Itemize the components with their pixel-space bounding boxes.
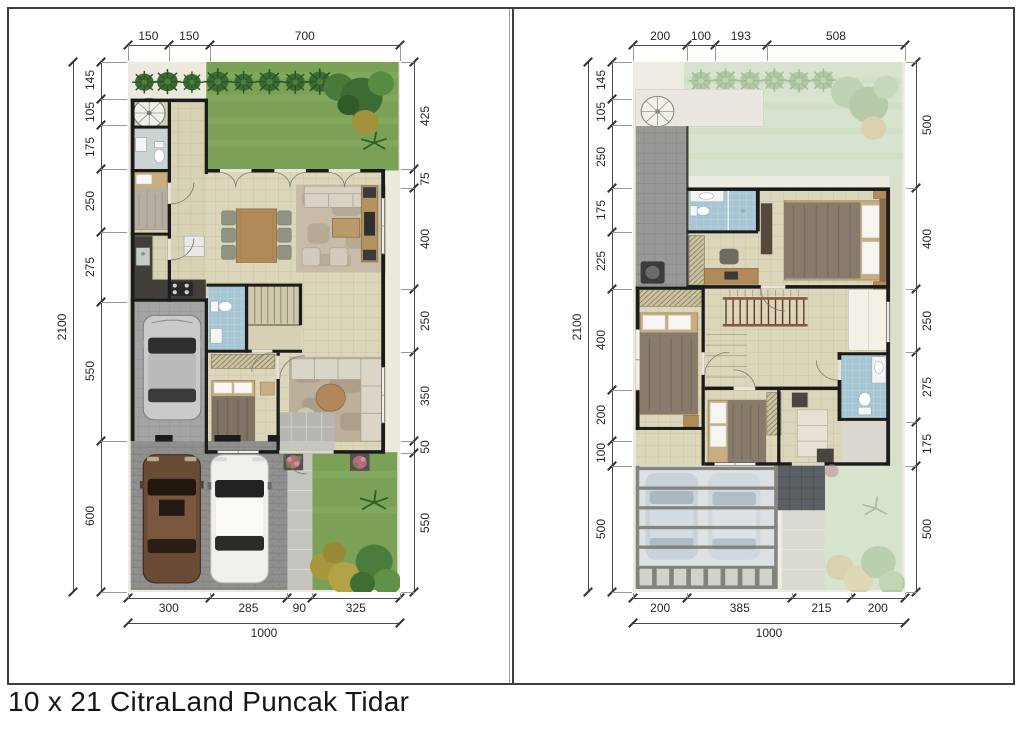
shelves bbox=[689, 236, 704, 285]
armchair bbox=[330, 248, 348, 266]
balcony bbox=[841, 422, 887, 466]
car-silver bbox=[140, 315, 204, 419]
panel-divider bbox=[512, 9, 514, 683]
ground-floor-plan bbox=[128, 62, 400, 592]
upper-floor-plan bbox=[633, 62, 905, 592]
spiral-stair bbox=[133, 98, 165, 127]
car-brown bbox=[140, 455, 204, 583]
maid-bed bbox=[134, 173, 167, 230]
desk-chair bbox=[719, 249, 738, 265]
l-sofa bbox=[361, 359, 385, 441]
spiral-stair-upper bbox=[641, 96, 674, 126]
maid-bathroom bbox=[135, 129, 168, 168]
stove bbox=[169, 282, 193, 297]
panel-divider-light bbox=[509, 9, 510, 683]
toilet bbox=[219, 302, 232, 312]
bathroom-3 bbox=[841, 355, 887, 419]
sink bbox=[211, 329, 222, 344]
bathroom-2 bbox=[689, 189, 758, 231]
car-white bbox=[207, 455, 271, 583]
entry-terrace bbox=[277, 412, 335, 452]
roof-deck bbox=[636, 126, 688, 288]
wardrobe bbox=[638, 290, 703, 307]
dining-set bbox=[222, 209, 292, 263]
carport-canopy bbox=[636, 466, 778, 566]
armchair bbox=[302, 248, 320, 266]
yellow-bush bbox=[352, 110, 378, 134]
trellis bbox=[636, 566, 778, 589]
bathroom-1 bbox=[209, 285, 245, 351]
toilet bbox=[859, 392, 871, 406]
staircase bbox=[248, 284, 301, 353]
plan-title: 10 x 21 CitraLand Puncak Tidar bbox=[8, 686, 409, 718]
toilet bbox=[697, 206, 710, 215]
round-table bbox=[316, 384, 345, 411]
wardrobe bbox=[211, 354, 275, 368]
front-garden bbox=[310, 452, 400, 592]
living-room bbox=[296, 185, 386, 273]
coffee-table bbox=[333, 218, 360, 237]
